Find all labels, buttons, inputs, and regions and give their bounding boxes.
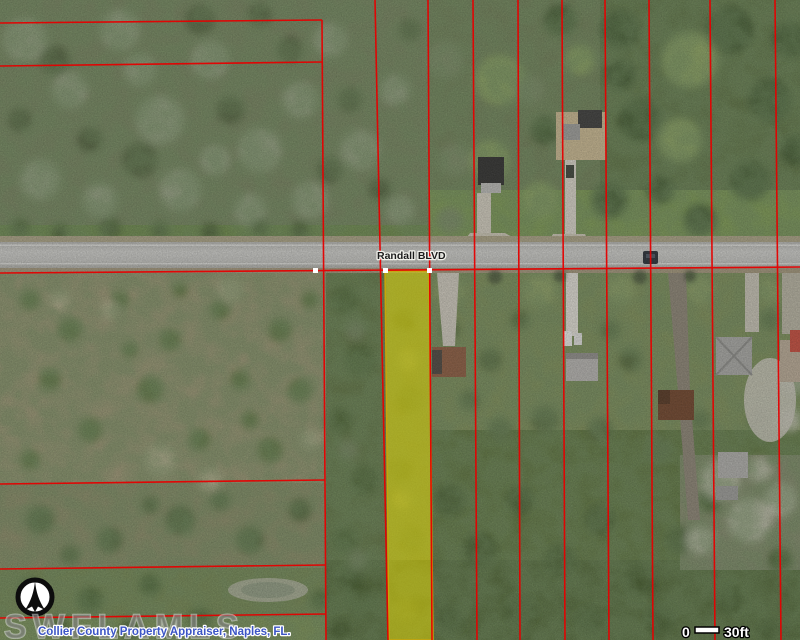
highlighted-parcel[interactable] — [385, 271, 433, 640]
attribution: Collier County Property Appraiser, Naple… — [38, 626, 291, 638]
scale-bar-segment — [695, 627, 719, 633]
map-canvas[interactable]: Randall BLVD SWFLAMLS Collier County Pro… — [0, 0, 800, 640]
scale-end-label: 30ft — [724, 624, 749, 640]
road-label: Randall BLVD — [377, 250, 446, 262]
scale-start-label: 0 — [682, 624, 690, 640]
aerial-map: Randall BLVD SWFLAMLS Collier County Pro… — [0, 0, 800, 640]
